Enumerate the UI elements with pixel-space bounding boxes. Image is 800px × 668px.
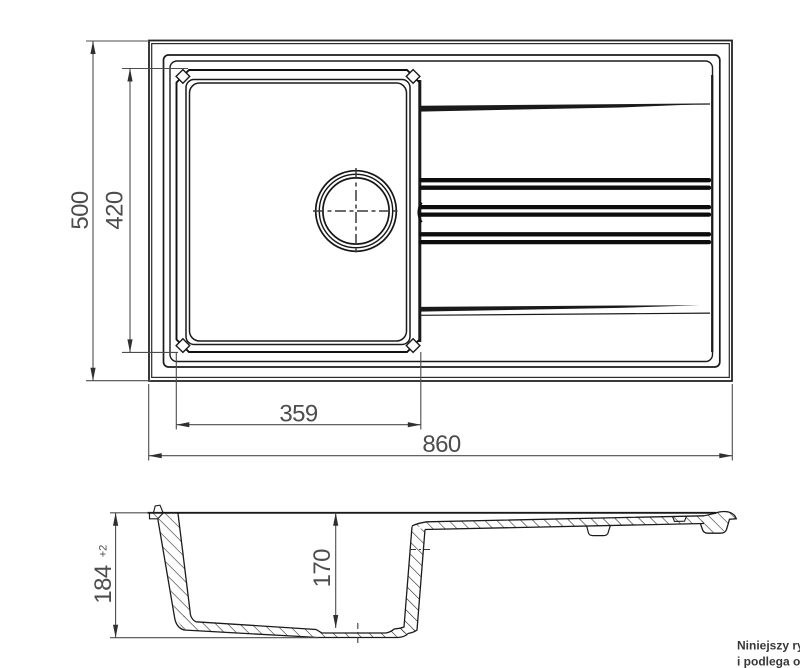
svg-text:500: 500	[67, 191, 94, 229]
svg-text:Niniejszy ry: Niniejszy ry	[737, 639, 800, 653]
svg-text:860: 860	[422, 431, 460, 458]
svg-text:359: 359	[279, 401, 317, 428]
svg-text:+2: +2	[98, 545, 110, 558]
svg-text:420: 420	[102, 191, 129, 229]
svg-text:184: 184	[90, 565, 117, 603]
svg-text:i podlega o: i podlega o	[737, 655, 800, 668]
svg-text:170: 170	[309, 549, 336, 587]
